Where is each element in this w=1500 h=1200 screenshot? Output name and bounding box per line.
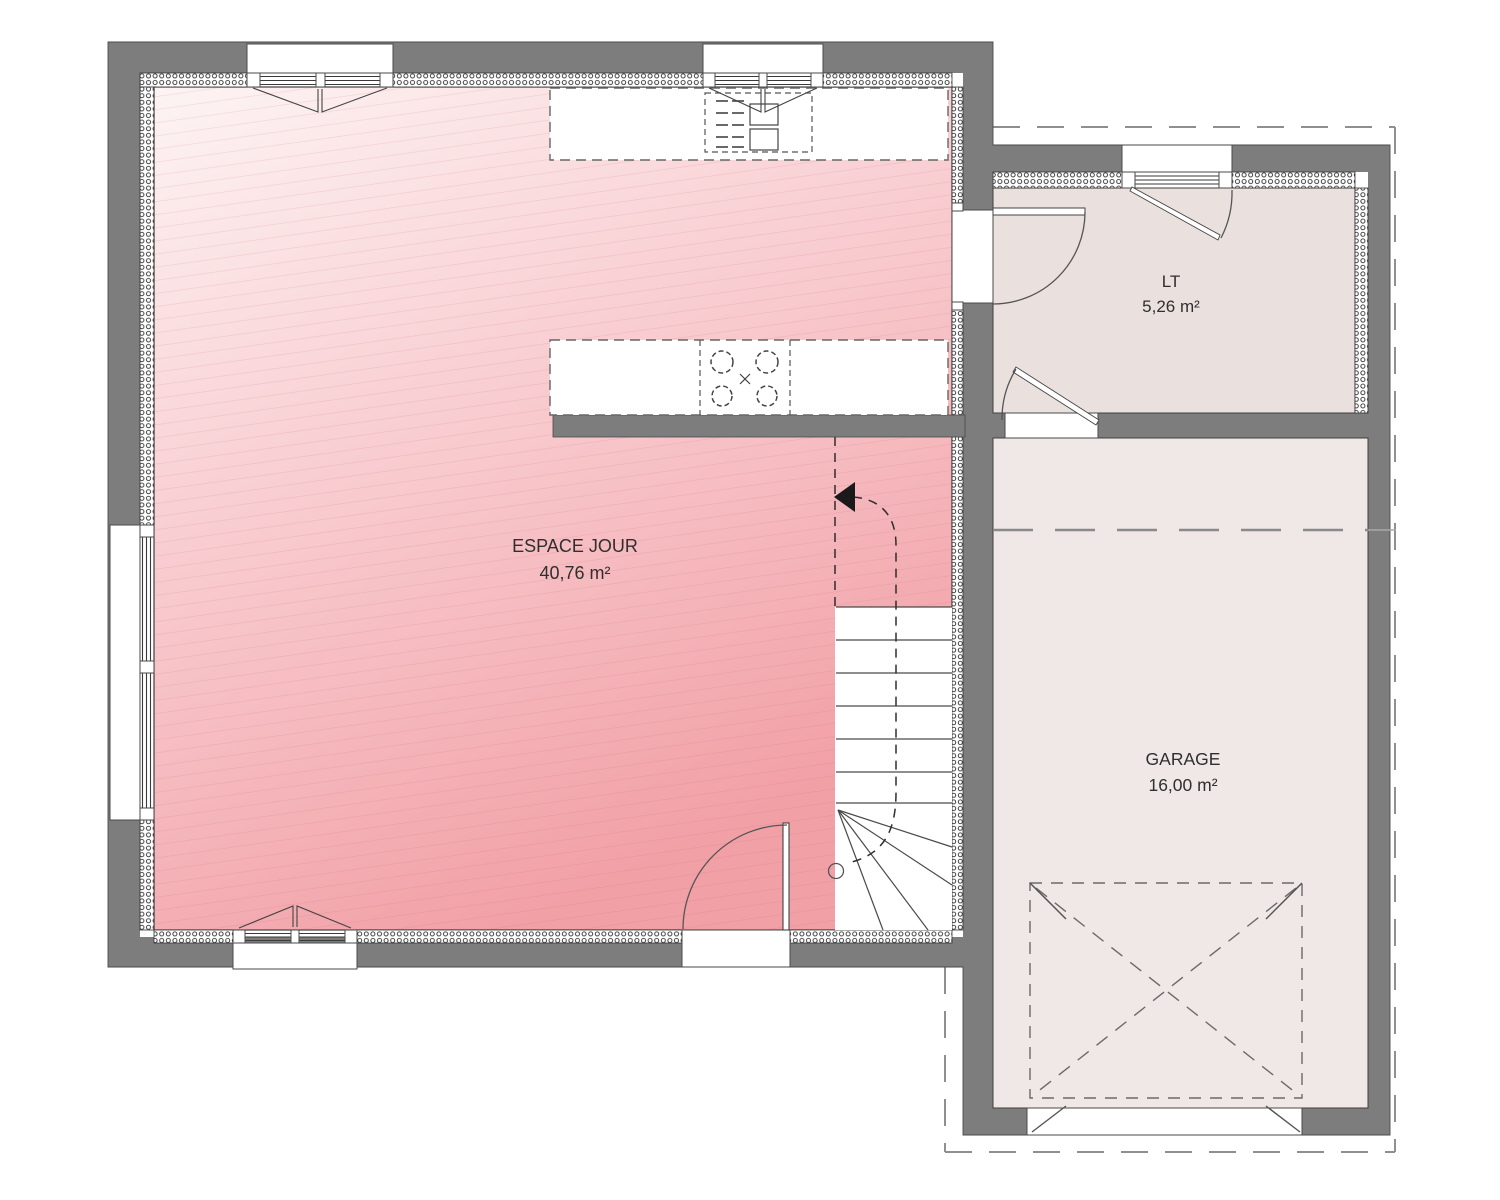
lt-door-leaf [993,208,1085,215]
garage-door-opening [1027,1106,1302,1135]
espace-jour-label: ESPACE JOUR [512,536,638,556]
kitchen-stub-wall [553,415,965,437]
kitchen-counter-bottom [550,340,948,415]
lt-area: 5,26 m² [1142,297,1200,316]
garage-area: 16,00 m² [1148,775,1217,795]
espace-jour-hatch [154,87,952,930]
window-left-bay [110,525,154,820]
garage-floor [993,438,1368,1108]
floor-plan-canvas: ESPACE JOUR 40,76 m² LT 5,26 m² GARAGE 1… [0,0,1500,1200]
entrance-door-leaf [783,823,789,930]
stair-well [835,607,952,930]
lt-label: LT [1162,272,1181,291]
espace-jour-area: 40,76 m² [539,563,610,583]
garage-label: GARAGE [1146,749,1221,769]
kitchen-counter-top [550,88,948,160]
floor-plan: ESPACE JOUR 40,76 m² LT 5,26 m² GARAGE 1… [0,0,1500,1200]
